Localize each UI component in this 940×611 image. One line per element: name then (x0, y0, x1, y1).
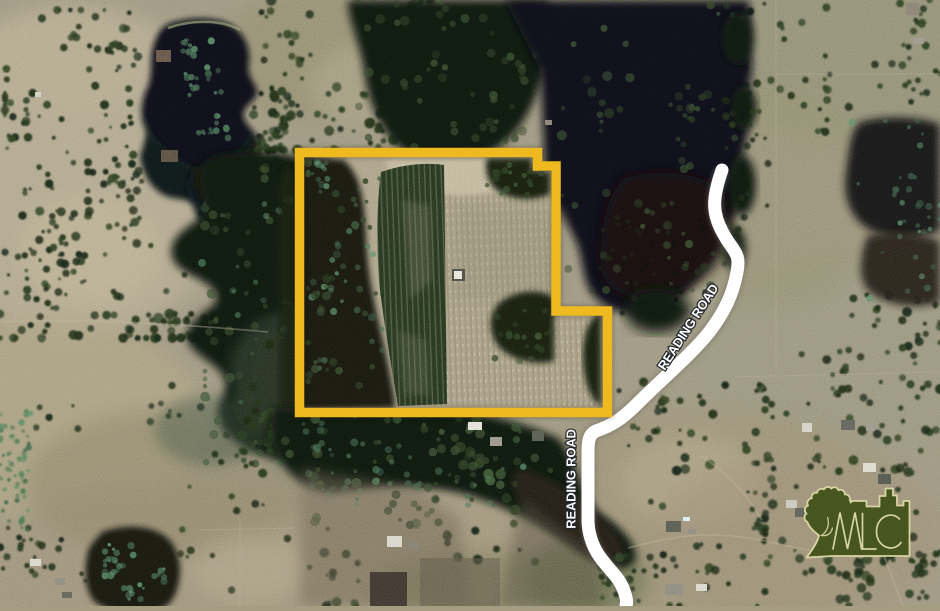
svg-text:READING ROAD: READING ROAD (564, 429, 579, 528)
